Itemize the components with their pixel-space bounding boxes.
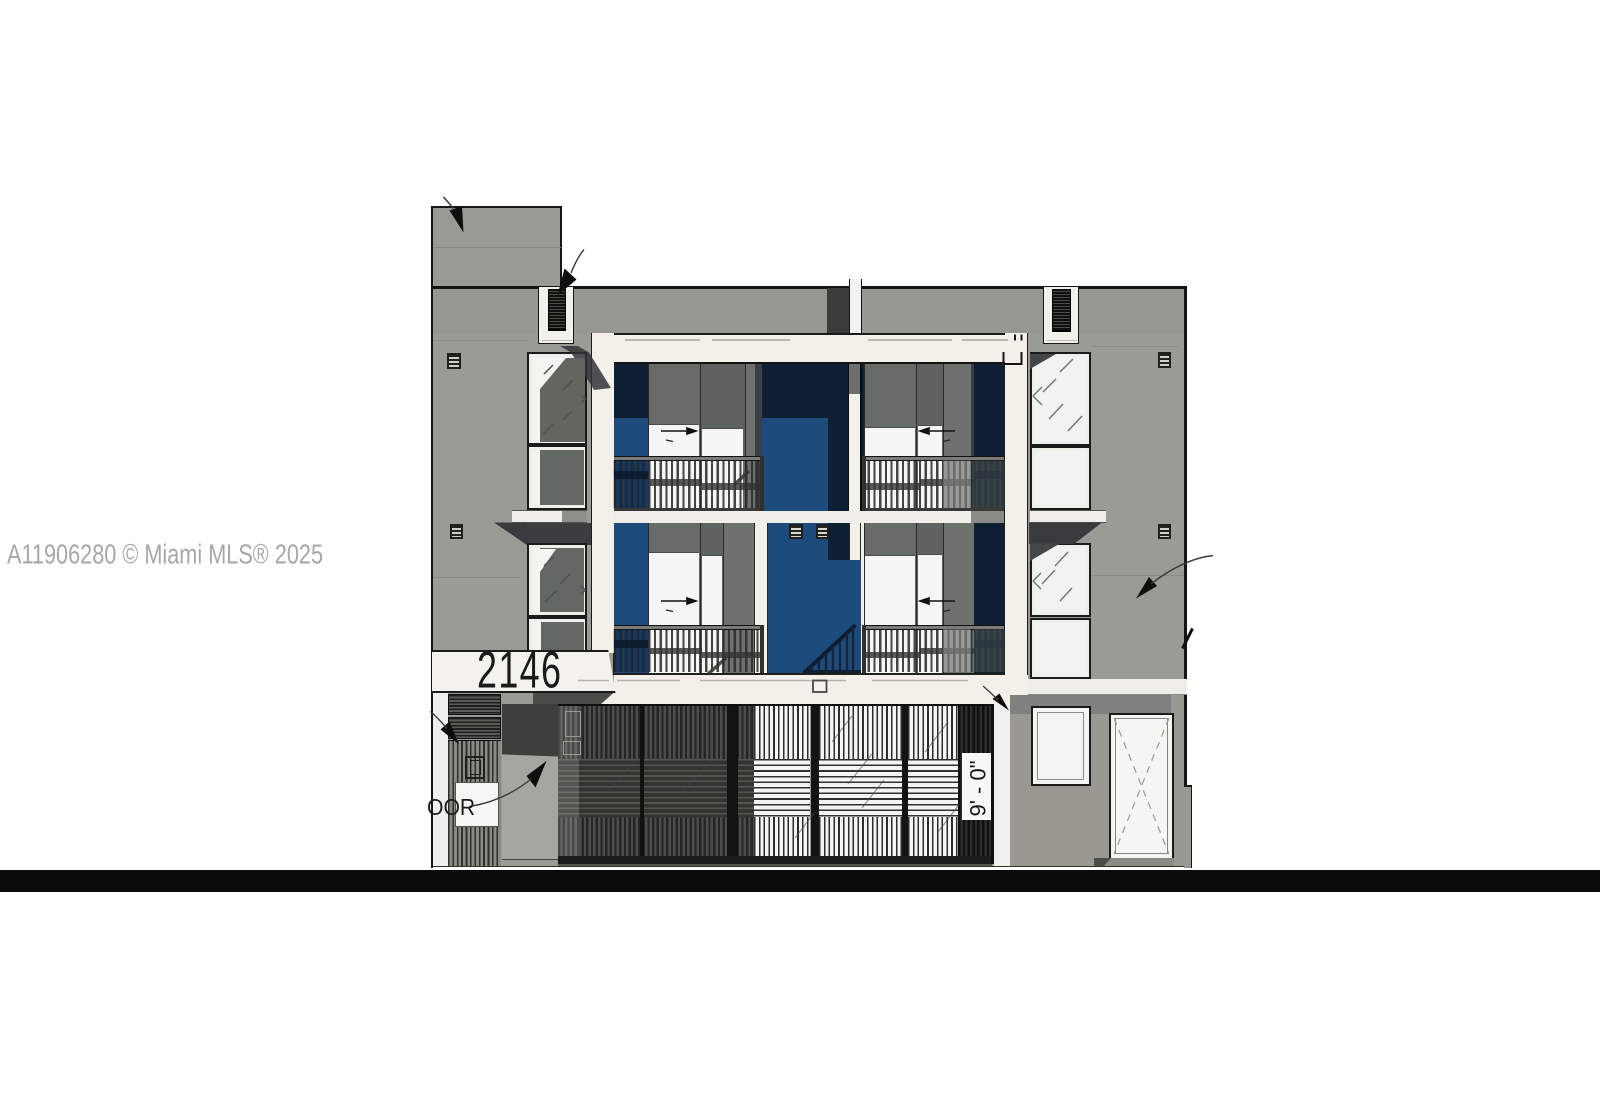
svg-text:OOR: OOR	[427, 794, 475, 820]
svg-text:2146: 2146	[477, 642, 562, 699]
svg-text:A11906280 © Miami MLS® 2025: A11906280 © Miami MLS® 2025	[7, 539, 323, 570]
svg-text:9' - 0": 9' - 0"	[966, 760, 991, 816]
